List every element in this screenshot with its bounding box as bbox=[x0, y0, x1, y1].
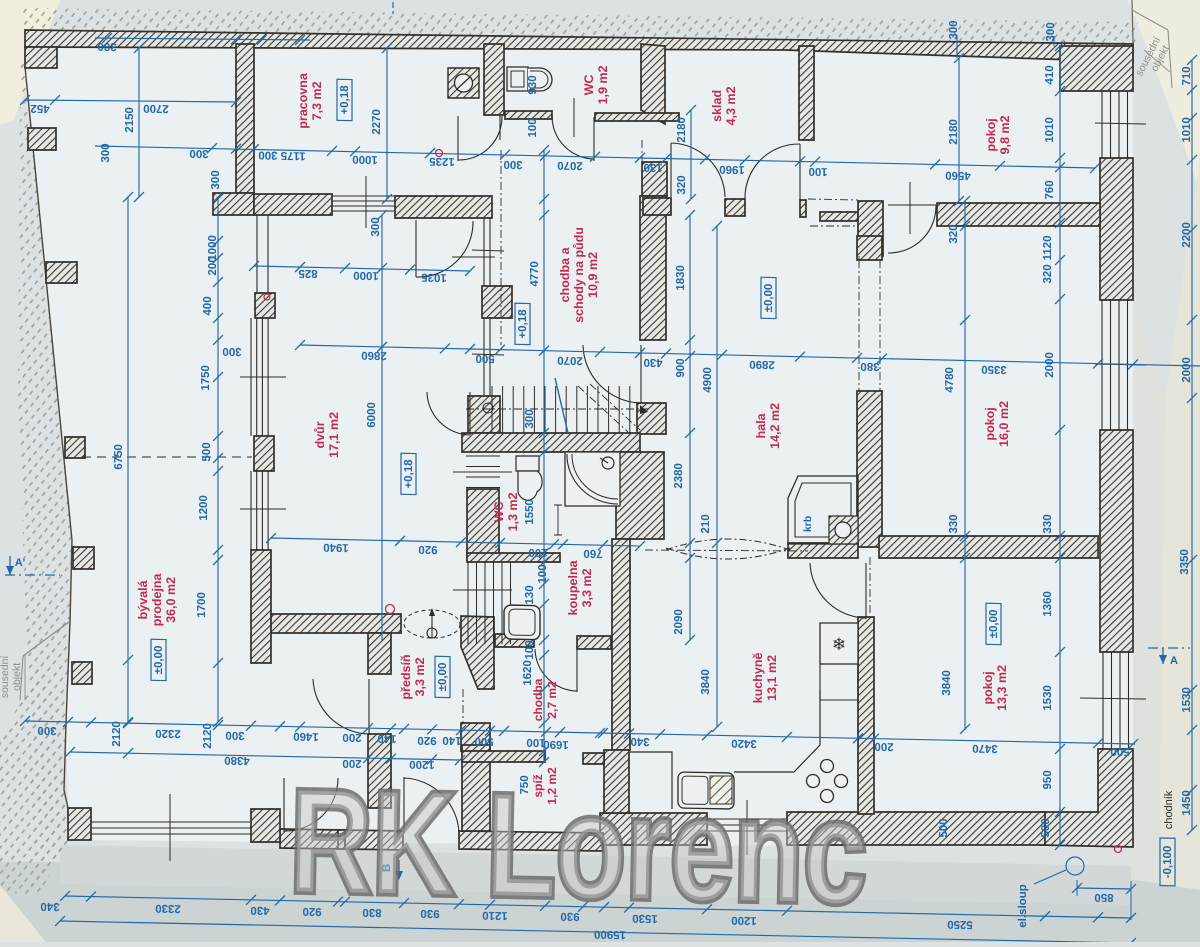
svg-text:210: 210 bbox=[700, 514, 712, 533]
svg-text:A: A bbox=[1170, 655, 1178, 667]
svg-text:140: 140 bbox=[442, 734, 461, 746]
svg-text:13,3 m2: 13,3 m2 bbox=[995, 665, 1009, 711]
svg-text:dvůr: dvůr bbox=[313, 421, 327, 448]
svg-text:5250: 5250 bbox=[947, 918, 973, 930]
svg-text:chodník: chodník bbox=[1163, 790, 1175, 829]
svg-text:1235: 1235 bbox=[429, 155, 455, 167]
svg-text:760: 760 bbox=[583, 547, 602, 559]
svg-text:1010: 1010 bbox=[1181, 117, 1193, 143]
svg-text:1010: 1010 bbox=[1044, 117, 1056, 143]
svg-text:320: 320 bbox=[948, 224, 960, 243]
svg-text:500: 500 bbox=[474, 735, 493, 747]
svg-text:2860: 2860 bbox=[361, 349, 387, 361]
svg-text:920: 920 bbox=[418, 543, 437, 555]
svg-text:2380: 2380 bbox=[673, 463, 685, 489]
svg-text:500: 500 bbox=[938, 818, 950, 837]
svg-text:130: 130 bbox=[524, 585, 536, 604]
svg-text:340: 340 bbox=[40, 900, 59, 912]
svg-text:2000: 2000 bbox=[1181, 357, 1193, 383]
svg-text:-0,100: -0,100 bbox=[1162, 846, 1174, 879]
svg-text:1960: 1960 bbox=[719, 163, 745, 175]
svg-text:1460: 1460 bbox=[293, 730, 319, 742]
svg-text:300: 300 bbox=[100, 143, 112, 162]
svg-text:1120: 1120 bbox=[1042, 235, 1054, 260]
svg-text:200: 200 bbox=[342, 731, 361, 743]
svg-text:sousední: sousední bbox=[0, 655, 11, 698]
svg-text:200: 200 bbox=[207, 256, 219, 275]
svg-text:1940: 1940 bbox=[323, 541, 349, 553]
svg-text:kuchyně: kuchyně bbox=[751, 652, 765, 703]
svg-text:14,2 m2: 14,2 m2 bbox=[768, 403, 782, 449]
svg-text:1035: 1035 bbox=[421, 271, 447, 283]
svg-text:300: 300 bbox=[189, 147, 208, 159]
svg-text:760: 760 bbox=[1044, 180, 1056, 199]
svg-text:+0,18: +0,18 bbox=[403, 459, 415, 489]
svg-text:pracovna: pracovna bbox=[296, 72, 310, 129]
svg-text:2700: 2700 bbox=[143, 102, 169, 114]
svg-text:3350: 3350 bbox=[981, 363, 1007, 375]
svg-text:3420: 3420 bbox=[731, 737, 757, 749]
svg-text:1530: 1530 bbox=[1181, 687, 1193, 713]
svg-text:objekt: objekt bbox=[11, 663, 23, 691]
svg-text:pokoj: pokoj bbox=[981, 671, 995, 705]
svg-text:330: 330 bbox=[948, 514, 960, 533]
svg-text:15900: 15900 bbox=[594, 928, 626, 941]
svg-text:950: 950 bbox=[1042, 770, 1054, 789]
svg-text:1200: 1200 bbox=[198, 495, 210, 521]
svg-text:schody na půdu: schody na půdu bbox=[572, 227, 586, 323]
svg-text:900: 900 bbox=[675, 358, 687, 377]
svg-text:300: 300 bbox=[948, 20, 960, 39]
svg-text:2070: 2070 bbox=[557, 354, 583, 366]
svg-text:2330: 2330 bbox=[155, 902, 181, 914]
svg-text:452: 452 bbox=[30, 102, 49, 114]
svg-text:❄: ❄ bbox=[832, 635, 846, 654]
svg-text:1700: 1700 bbox=[196, 592, 208, 618]
svg-text:100: 100 bbox=[527, 118, 539, 137]
svg-text:+0,18: +0,18 bbox=[517, 309, 529, 339]
svg-text:330: 330 bbox=[1042, 514, 1054, 533]
svg-text:140: 140 bbox=[377, 732, 396, 744]
svg-text:±0,00: ±0,00 bbox=[763, 283, 775, 312]
svg-text:A': A' bbox=[15, 557, 26, 569]
svg-text:130: 130 bbox=[643, 161, 662, 173]
svg-text:400: 400 bbox=[202, 296, 214, 315]
svg-text:1,3 m2: 1,3 m2 bbox=[506, 492, 520, 531]
svg-text:2,7 m2: 2,7 m2 bbox=[545, 681, 559, 719]
svg-text:300: 300 bbox=[210, 170, 222, 189]
svg-text:430: 430 bbox=[643, 356, 662, 368]
svg-text:WC: WC bbox=[582, 74, 596, 95]
svg-text:4560: 4560 bbox=[945, 169, 971, 181]
svg-text:16,0 m2: 16,0 m2 bbox=[997, 401, 1011, 447]
svg-text:300: 300 bbox=[225, 729, 244, 741]
svg-text:340: 340 bbox=[630, 735, 649, 747]
svg-text:10,9 m2: 10,9 m2 bbox=[586, 252, 600, 298]
svg-text:el.sloup: el.sloup bbox=[1017, 884, 1029, 928]
svg-text:1530: 1530 bbox=[1042, 685, 1054, 711]
svg-text:2120: 2120 bbox=[111, 721, 123, 747]
svg-text:4380: 4380 bbox=[224, 754, 250, 766]
svg-text:chodba: chodba bbox=[531, 678, 545, 721]
svg-text:6000: 6000 bbox=[366, 402, 378, 428]
svg-text:300: 300 bbox=[222, 345, 241, 357]
svg-text:2890: 2890 bbox=[749, 358, 775, 370]
svg-text:825: 825 bbox=[298, 267, 318, 279]
svg-text:předsíň: předsíň bbox=[399, 654, 413, 699]
svg-text:1175 300: 1175 300 bbox=[258, 149, 305, 162]
svg-text:1450: 1450 bbox=[1181, 790, 1193, 816]
svg-text:300: 300 bbox=[37, 724, 56, 736]
svg-text:pokoj: pokoj bbox=[984, 118, 998, 152]
svg-text:920: 920 bbox=[417, 734, 436, 746]
svg-text:±0,00: ±0,00 bbox=[437, 662, 449, 691]
svg-text:hala: hala bbox=[754, 412, 768, 438]
svg-text:3350: 3350 bbox=[1179, 549, 1191, 575]
svg-text:4770: 4770 bbox=[529, 261, 541, 287]
svg-text:3470: 3470 bbox=[972, 742, 998, 754]
svg-text:300: 300 bbox=[503, 158, 522, 170]
svg-text:300: 300 bbox=[370, 217, 382, 236]
svg-text:1000: 1000 bbox=[352, 153, 378, 165]
svg-text:500: 500 bbox=[475, 352, 494, 364]
svg-text:sklad: sklad bbox=[710, 90, 724, 122]
svg-text:500: 500 bbox=[1040, 818, 1052, 837]
svg-text:chodba a: chodba a bbox=[558, 246, 572, 302]
svg-text:2000: 2000 bbox=[1044, 352, 1056, 378]
svg-text:36,0 m2: 36,0 m2 bbox=[164, 577, 178, 623]
svg-text:13,1 m2: 13,1 m2 bbox=[765, 655, 779, 701]
svg-text:1830: 1830 bbox=[675, 265, 687, 291]
svg-text:200: 200 bbox=[874, 740, 893, 752]
svg-text:17,1 m2: 17,1 m2 bbox=[327, 412, 341, 458]
svg-text:430: 430 bbox=[250, 904, 269, 916]
svg-text:krb: krb bbox=[802, 516, 814, 533]
svg-text:koupelna: koupelna bbox=[566, 559, 580, 615]
svg-text:2320: 2320 bbox=[155, 727, 181, 739]
svg-text:7,3 m2: 7,3 m2 bbox=[310, 81, 324, 120]
svg-text:100: 100 bbox=[526, 736, 545, 748]
svg-text:320: 320 bbox=[1042, 264, 1054, 283]
svg-text:2180: 2180 bbox=[948, 119, 960, 145]
svg-text:RK Lorenc: RK Lorenc bbox=[288, 759, 868, 934]
svg-text:WC: WC bbox=[492, 501, 506, 522]
svg-text:4,3 m2: 4,3 m2 bbox=[724, 86, 738, 125]
svg-text:410: 410 bbox=[1044, 65, 1056, 84]
svg-text:6750: 6750 bbox=[113, 444, 125, 470]
svg-text:9,8 m2: 9,8 m2 bbox=[998, 115, 1012, 154]
svg-text:pokoj: pokoj bbox=[983, 407, 997, 441]
svg-text:3840: 3840 bbox=[700, 669, 712, 695]
svg-text:3840: 3840 bbox=[941, 670, 953, 696]
svg-text:710: 710 bbox=[1181, 66, 1193, 85]
svg-text:1000: 1000 bbox=[353, 269, 379, 281]
svg-text:1360: 1360 bbox=[1042, 591, 1054, 617]
svg-text:1,9 m2: 1,9 m2 bbox=[596, 65, 610, 104]
svg-text:100: 100 bbox=[537, 564, 549, 583]
svg-text:+0,18: +0,18 bbox=[339, 85, 351, 115]
svg-text:380: 380 bbox=[860, 360, 879, 372]
svg-text:2180: 2180 bbox=[676, 117, 688, 143]
svg-text:3,3 m2: 3,3 m2 bbox=[413, 657, 427, 696]
svg-text:bývalá: bývalá bbox=[136, 580, 150, 619]
svg-text:2150: 2150 bbox=[124, 107, 136, 133]
svg-text:500: 500 bbox=[1110, 745, 1129, 757]
svg-text:300: 300 bbox=[97, 40, 116, 52]
svg-text:3,3 m2: 3,3 m2 bbox=[580, 568, 594, 607]
svg-text:500: 500 bbox=[201, 442, 213, 461]
svg-text:930: 930 bbox=[527, 75, 539, 94]
svg-text:1550: 1550 bbox=[524, 499, 536, 525]
svg-text:±0,00: ±0,00 bbox=[988, 609, 1000, 638]
svg-text:1750: 1750 bbox=[200, 365, 212, 391]
svg-text:4780: 4780 bbox=[944, 367, 956, 393]
svg-text:320: 320 bbox=[676, 175, 688, 194]
svg-text:850: 850 bbox=[1094, 891, 1113, 903]
svg-text:2200: 2200 bbox=[1181, 222, 1193, 248]
svg-text:2070: 2070 bbox=[557, 159, 583, 171]
svg-text:300: 300 bbox=[1045, 22, 1057, 41]
svg-text:100: 100 bbox=[524, 640, 536, 659]
svg-text:2120: 2120 bbox=[202, 723, 214, 749]
svg-text:2270: 2270 bbox=[371, 109, 383, 135]
svg-text:prodejna: prodejna bbox=[150, 572, 164, 626]
svg-text:300: 300 bbox=[524, 409, 536, 428]
svg-text:100: 100 bbox=[808, 165, 827, 177]
svg-text:±0,00: ±0,00 bbox=[153, 645, 165, 674]
svg-text:2090: 2090 bbox=[673, 609, 685, 635]
svg-text:4900: 4900 bbox=[702, 367, 714, 393]
